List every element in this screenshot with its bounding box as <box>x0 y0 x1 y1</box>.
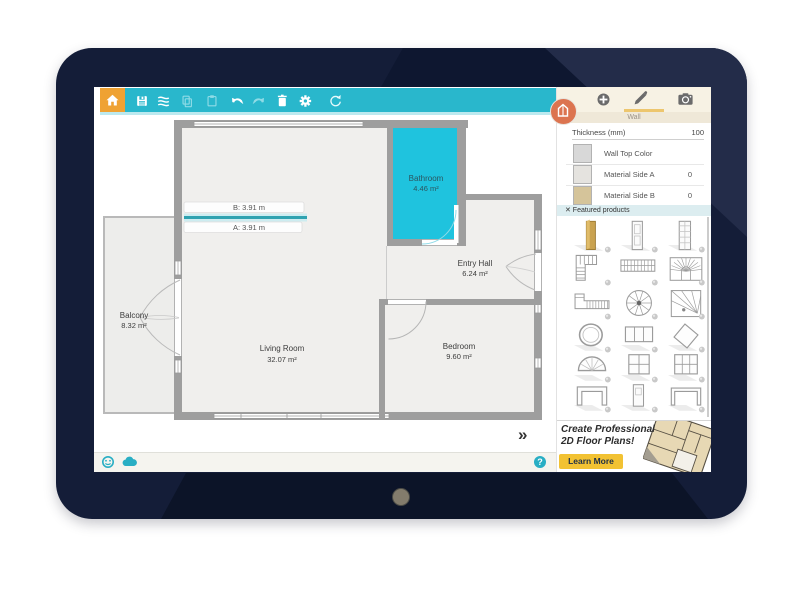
svg-text:Living Room: Living Room <box>260 344 305 353</box>
svg-text:Bedroom: Bedroom <box>443 342 476 351</box>
svg-text:6.24 m²: 6.24 m² <box>462 269 488 278</box>
svg-text:B: 3.91 m: B: 3.91 m <box>233 203 265 212</box>
svg-text:4.46 m²: 4.46 m² <box>413 184 439 193</box>
svg-text:8.32 m²: 8.32 m² <box>121 321 147 330</box>
svg-text:32.07 m²: 32.07 m² <box>267 355 297 364</box>
svg-text:Balcony: Balcony <box>120 311 148 320</box>
svg-text:Bathroom: Bathroom <box>409 174 444 183</box>
svg-text:9.60 m²: 9.60 m² <box>446 352 472 361</box>
svg-text:Entry Hall: Entry Hall <box>458 259 493 268</box>
svg-text:A: 3.91 m: A: 3.91 m <box>233 223 265 232</box>
